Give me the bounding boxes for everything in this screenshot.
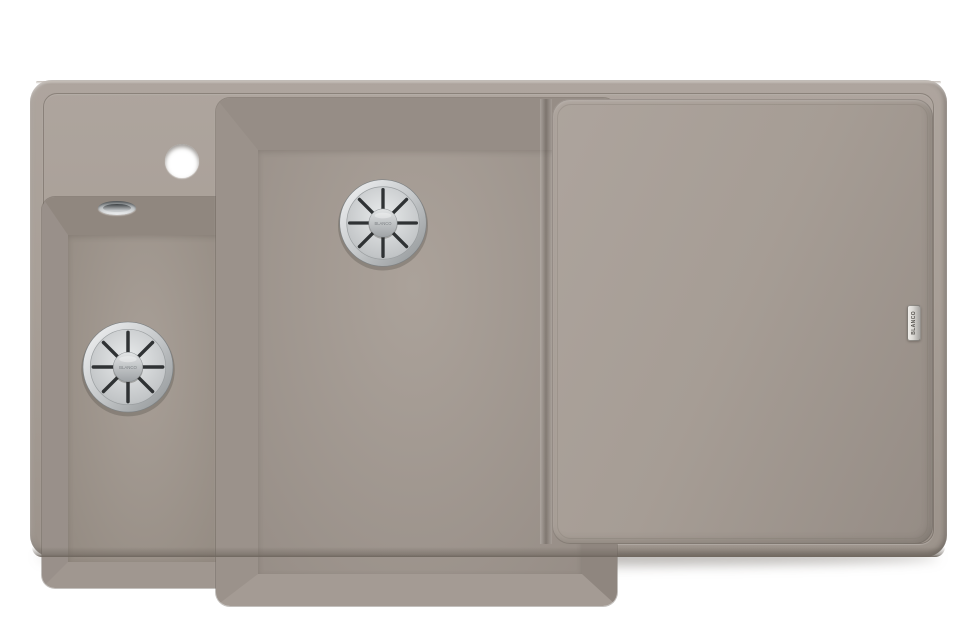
tap-ledge	[44, 94, 226, 197]
drainboard	[552, 99, 933, 544]
blanco-badge-label: BLANCO	[912, 311, 917, 335]
small-bowl-drain-strainer	[76, 315, 180, 419]
main-bowl-drain-strainer	[333, 173, 433, 273]
sink-body: BLANCO	[30, 80, 947, 557]
sink-front-bottom-edge	[32, 547, 945, 557]
blanco-badge: BLANCO	[907, 305, 921, 341]
overflow-slot	[103, 204, 131, 212]
overflow-fitting	[98, 201, 136, 215]
product-photo-scene: BLANCO	[0, 0, 960, 640]
tap-hole	[165, 144, 199, 178]
bowl-drainboard-divider	[540, 99, 552, 544]
sink-top-edge-highlight	[36, 81, 941, 84]
